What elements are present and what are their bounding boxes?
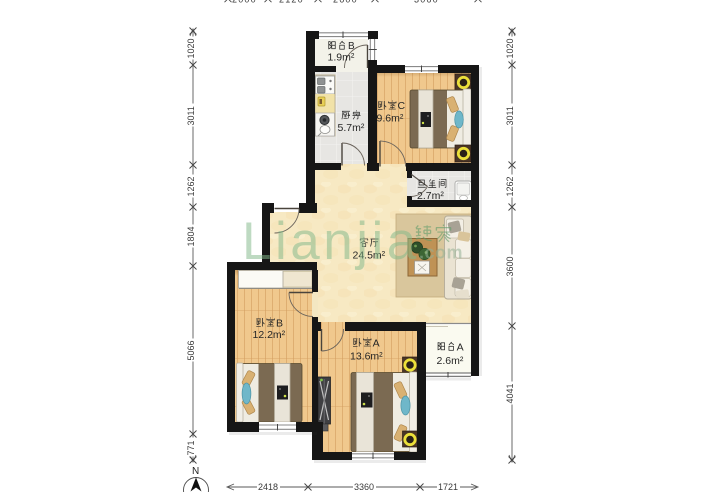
svg-text:2600: 2600 — [333, 0, 358, 4]
svg-text:12.2m²: 12.2m² — [253, 329, 286, 341]
svg-text:.com: .com — [419, 243, 463, 263]
svg-text:771: 771 — [186, 440, 196, 455]
svg-text:N: N — [192, 466, 199, 477]
svg-text:2.7m²: 2.7m² — [417, 190, 444, 202]
svg-text:13.6m²: 13.6m² — [350, 351, 383, 363]
svg-text:2000: 2000 — [232, 0, 257, 4]
svg-text:2120: 2120 — [279, 0, 304, 4]
svg-text:B: B — [276, 318, 283, 330]
svg-text:5.7m²: 5.7m² — [338, 122, 365, 134]
svg-text:4041: 4041 — [505, 383, 515, 403]
svg-text:2.6m²: 2.6m² — [437, 355, 464, 367]
svg-text:Lianjia: Lianjia — [242, 212, 420, 271]
svg-text:3060: 3060 — [414, 0, 439, 4]
svg-text:A: A — [373, 338, 380, 350]
svg-text:1804: 1804 — [186, 226, 196, 246]
svg-text:5066: 5066 — [186, 340, 196, 360]
svg-text:1020: 1020 — [505, 38, 515, 58]
svg-text:9.6m²: 9.6m² — [377, 113, 404, 125]
svg-text:2418: 2418 — [258, 482, 278, 492]
svg-text:1262: 1262 — [186, 176, 196, 196]
svg-text:1262: 1262 — [505, 176, 515, 196]
svg-text:1.9m²: 1.9m² — [328, 52, 355, 64]
svg-text:3360: 3360 — [354, 482, 374, 492]
svg-text:3011: 3011 — [505, 106, 515, 125]
svg-text:3011: 3011 — [186, 106, 196, 125]
svg-text:A: A — [457, 342, 464, 354]
svg-text:1721: 1721 — [438, 482, 458, 492]
svg-text:3600: 3600 — [505, 256, 515, 276]
svg-text:C: C — [398, 100, 406, 112]
svg-text:1020: 1020 — [186, 38, 196, 58]
